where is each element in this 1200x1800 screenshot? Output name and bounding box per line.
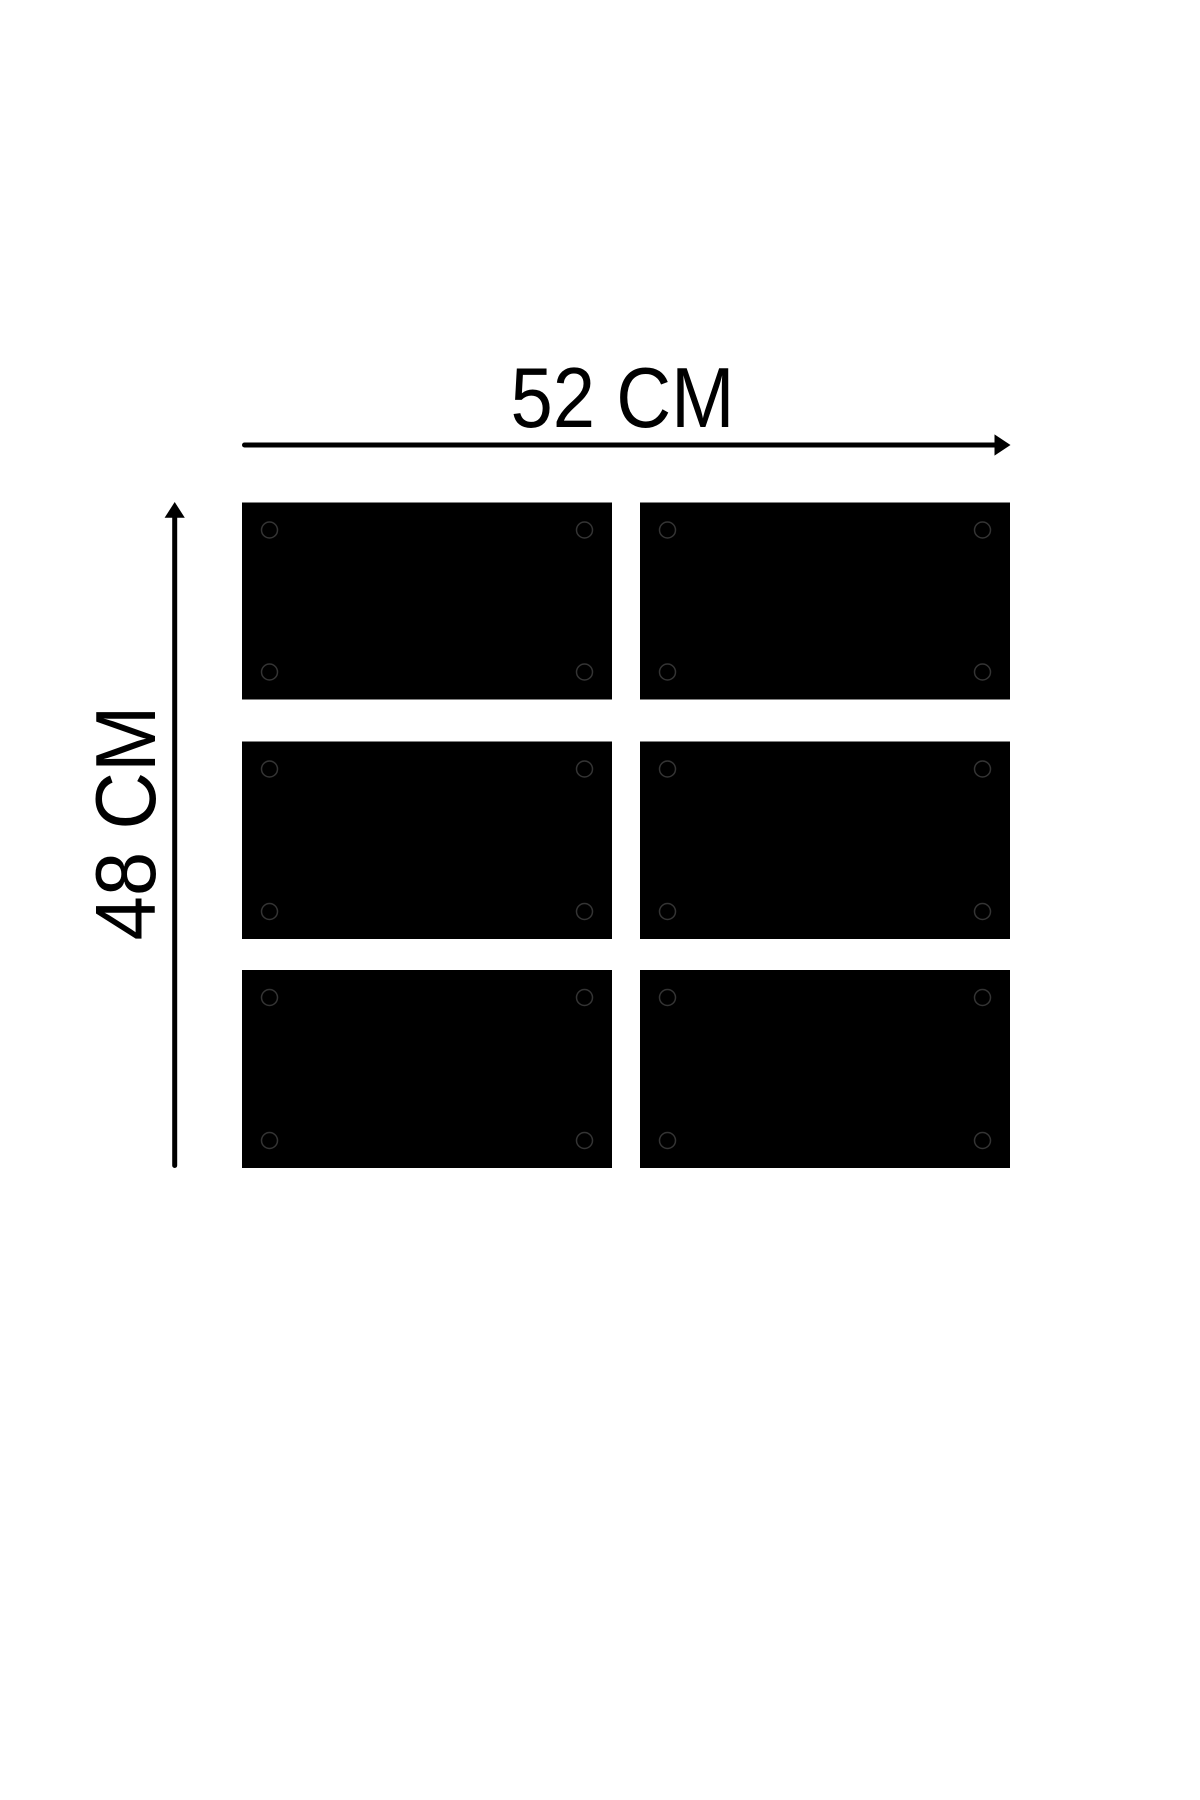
svg-text:48 CM: 48 CM [79, 706, 174, 941]
svg-text:52 CM: 52 CM [511, 351, 735, 446]
